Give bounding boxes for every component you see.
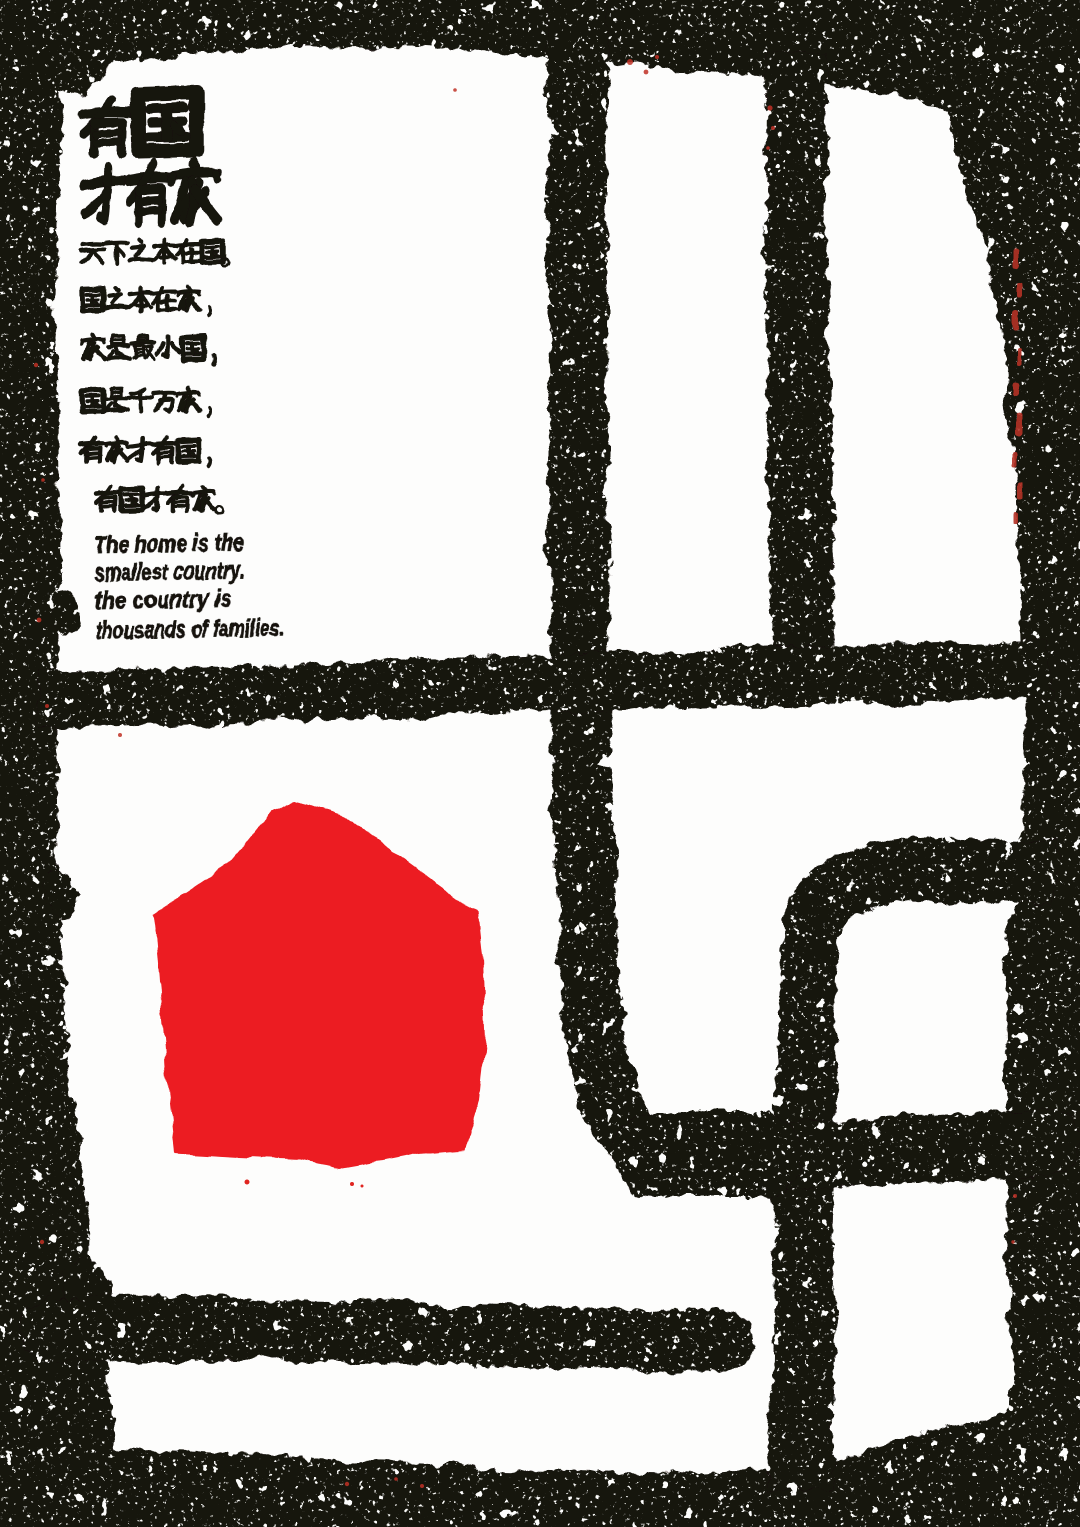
svg-text:The home is the: The home is the [94, 529, 244, 559]
svg-text:the country is: the country is [95, 586, 232, 615]
svg-text:thousands of families.: thousands of families. [95, 615, 284, 645]
svg-text:smallest country.: smallest country. [94, 557, 244, 587]
